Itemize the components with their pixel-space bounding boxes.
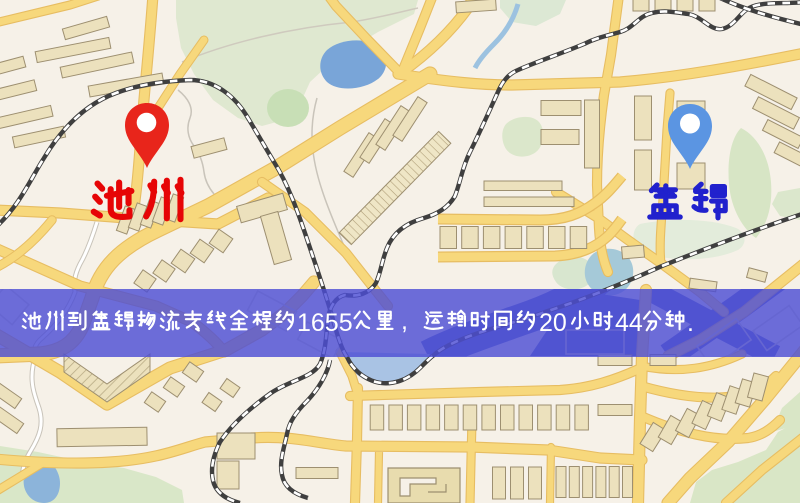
svg-text:,: , [401, 307, 408, 335]
svg-text:.: . [687, 309, 694, 337]
svg-text:1655: 1655 [297, 309, 353, 337]
svg-text:20: 20 [539, 309, 567, 337]
svg-text:44: 44 [615, 309, 643, 337]
